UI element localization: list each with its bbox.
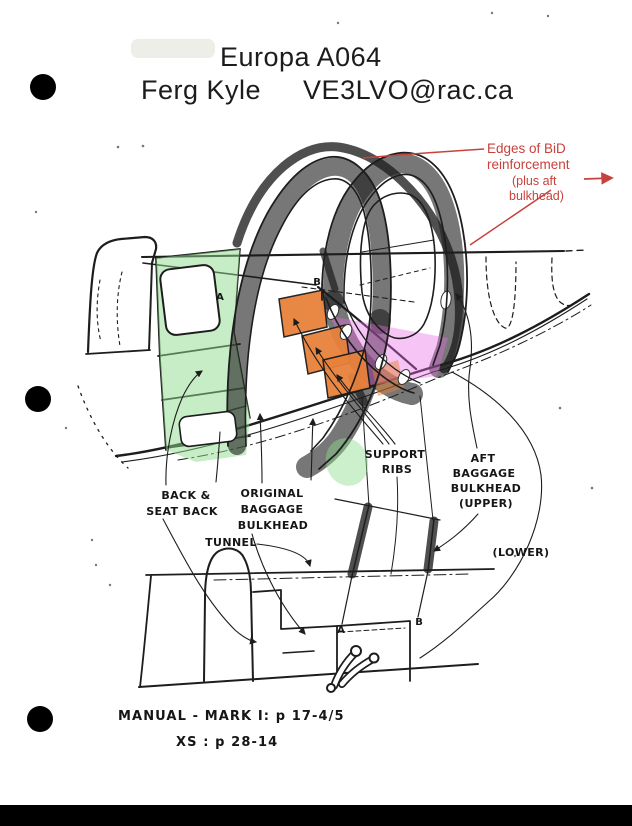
seat-dash-1	[97, 280, 101, 342]
leader-original-up	[260, 414, 262, 483]
tunnel-hump	[204, 549, 253, 681]
label-tunnel: TUNNEL	[205, 536, 257, 549]
label-original-1: ORIGINAL	[241, 487, 304, 500]
label-original-3: BULKHEAD	[238, 519, 308, 532]
punch-hole-top	[30, 74, 56, 100]
marker-a-bottom: A	[337, 625, 345, 636]
support-rib-1	[279, 290, 327, 337]
label-lower: (LOWER)	[493, 546, 550, 559]
strip-a-extension	[342, 576, 352, 624]
sill-dashes	[566, 250, 586, 251]
seatback-lower-panel	[178, 411, 237, 448]
leader-bay-arc	[420, 372, 542, 658]
headrest-base	[86, 350, 150, 354]
frame-dash-2	[552, 258, 576, 306]
red-note-2: reinforcement	[487, 157, 570, 172]
red-note-3: (plus aft	[512, 174, 557, 188]
scanned-page: Europa A064 Ferg Kyle VE3LVO@rac.ca	[0, 0, 632, 826]
bid-red-strip-a	[352, 507, 368, 574]
leader-support-down	[391, 477, 398, 574]
headrest-right-edge	[149, 263, 152, 350]
bid-red-strip-b	[428, 521, 434, 569]
punch-hole-bottom	[27, 706, 53, 732]
manual-reference: MANUAL - MARK I: p 17-4/5	[118, 709, 345, 724]
leader-original-down	[252, 534, 305, 634]
keel-line	[139, 664, 478, 687]
marker-b-top: B	[313, 277, 321, 288]
seatback-window	[159, 264, 221, 336]
step-dash	[340, 628, 405, 632]
floor-line	[146, 569, 494, 575]
diagram-canvas: A B A B BACK & SEAT BACK ORIGINAL	[0, 0, 632, 826]
label-support-1: SUPPORT	[365, 448, 426, 461]
lower-bulkhead-top	[335, 499, 440, 520]
label-aft-2: BAGGAGE	[453, 467, 516, 480]
strip-b-extension	[418, 571, 428, 617]
floor-dashdot	[214, 574, 470, 580]
label-back-seat-2: SEAT BACK	[146, 505, 218, 518]
seat-dash-2	[117, 272, 122, 346]
leader-tunnel	[257, 544, 310, 566]
label-support-2: RIBS	[382, 463, 412, 476]
red-arrow	[584, 178, 612, 179]
red-note-1: Edges of BiD	[487, 141, 566, 156]
punch-holes	[25, 74, 56, 732]
label-aft-4: (UPPER)	[459, 497, 513, 510]
xs-reference: XS : p 28-14	[176, 735, 278, 750]
scan-edge-bar	[0, 805, 632, 826]
step-box-1	[253, 590, 337, 681]
frame-dash-1	[486, 257, 516, 328]
leader-upper-to-strip	[434, 514, 478, 551]
step-detail	[283, 651, 314, 653]
label-aft-3: BULKHEAD	[451, 482, 521, 495]
label-aft-1: AFT	[471, 452, 496, 465]
marker-b-bottom: B	[415, 617, 423, 628]
punch-hole-middle	[25, 386, 51, 412]
label-back-seat-1: BACK &	[161, 489, 210, 502]
marker-a-top: A	[216, 292, 224, 303]
footer-notes: MANUAL - MARK I: p 17-4/5 XS : p 28-14	[118, 709, 345, 750]
belly-left-edge	[140, 576, 151, 687]
red-note-4: bulkhead)	[509, 189, 564, 203]
control-stick	[327, 646, 379, 692]
label-original-2: BAGGAGE	[241, 503, 304, 516]
